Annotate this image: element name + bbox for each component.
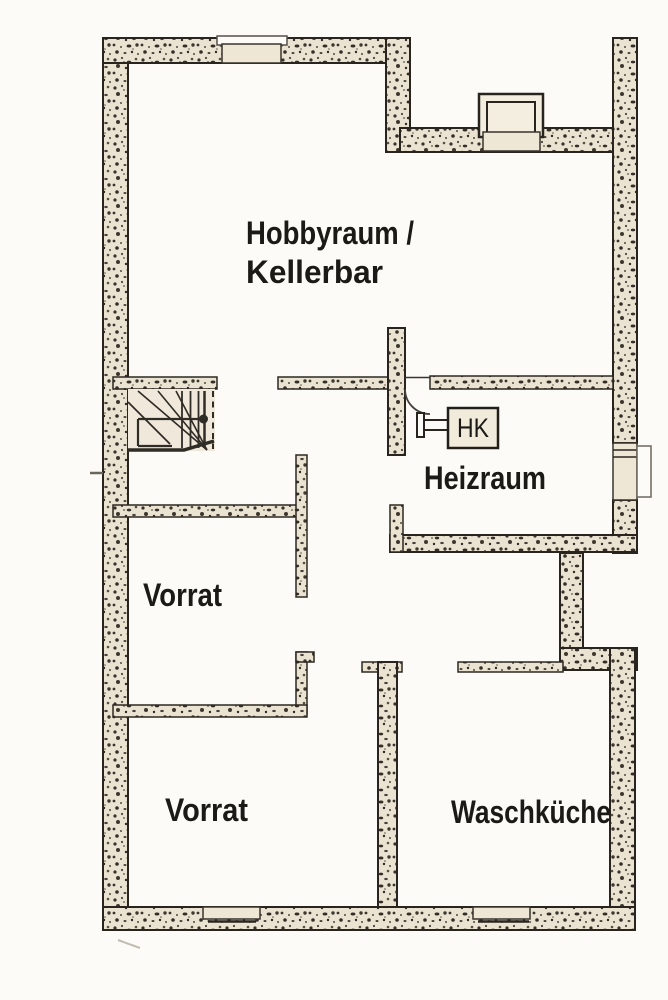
wall-right-upper xyxy=(613,38,637,443)
wall-center-stem xyxy=(378,662,397,907)
room-label-vorrat-upper: Vorrat xyxy=(143,577,222,613)
lightwell-outer xyxy=(479,94,543,137)
wall-heizraum-door-jamb xyxy=(390,505,403,552)
room-label-vorrat-lower: Vorrat xyxy=(165,792,248,828)
window-bottom-right-sill xyxy=(473,907,530,919)
wall-vorrat-lower-top xyxy=(113,705,307,717)
window-right xyxy=(613,443,651,500)
window-right-shaft xyxy=(637,446,651,497)
floorplan-canvas: HK Hobbyraum / Kellerbar Heizraum Vorrat… xyxy=(0,0,668,1000)
wall-hall-top xyxy=(278,377,388,389)
wall-vorrat-upper-top xyxy=(113,505,297,517)
wall-right-lower xyxy=(610,648,635,930)
scan-smudge-bottom-left xyxy=(118,940,140,948)
window-bottom-right xyxy=(473,907,530,922)
window-top-sill xyxy=(222,44,281,63)
wall-vorrat-lower-right-stub xyxy=(296,652,314,662)
wall-vorrat-upper-right xyxy=(296,455,307,597)
wall-heizraum-bottom xyxy=(390,535,637,552)
window-top xyxy=(217,36,287,63)
floorplan-page: HK Hobbyraum / Kellerbar Heizraum Vorrat… xyxy=(0,0,668,1000)
boiler-label: HK xyxy=(457,413,489,443)
window-bottom-left xyxy=(203,907,260,922)
door-swing-heizraum xyxy=(405,389,430,414)
wall-stair-top xyxy=(113,377,217,389)
boiler-pipe-horizontal xyxy=(424,420,448,430)
boiler-pipe-end xyxy=(417,413,424,437)
room-label-heizraum: Heizraum xyxy=(424,460,546,496)
room-label-hobbyraum-line1: Hobbyraum / xyxy=(246,215,414,251)
window-bottom-left-sill xyxy=(203,907,260,919)
window-right-sill xyxy=(613,443,637,500)
wall-central-vertical xyxy=(388,328,405,455)
wall-waschkueche-top xyxy=(458,662,563,672)
window-lightwell-topright xyxy=(479,94,543,151)
room-label-waschkueche: Waschküche xyxy=(451,794,611,830)
room-label-hobbyraum-line2: Kellerbar xyxy=(246,254,383,290)
wall-heizraum-top xyxy=(430,376,613,389)
wall-bottom xyxy=(103,907,635,930)
lightwell-sill xyxy=(483,132,540,151)
wall-left xyxy=(103,38,128,930)
staircase xyxy=(128,389,215,451)
